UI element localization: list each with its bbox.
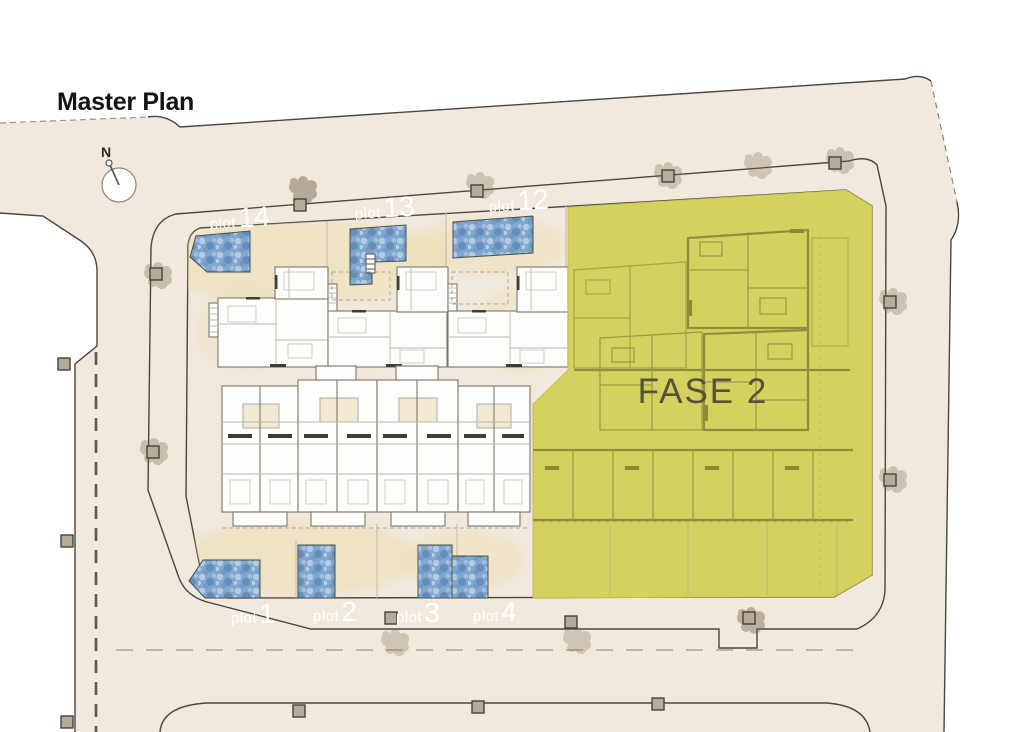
post-icon xyxy=(294,199,306,211)
post-icon xyxy=(150,268,162,280)
post-icon xyxy=(743,612,755,624)
pool-plot-2 xyxy=(298,545,335,598)
pool-plot-12 xyxy=(453,216,533,258)
building-plot-3 xyxy=(377,366,458,526)
pool-plot-3 xyxy=(418,545,452,598)
pool-plot-4 xyxy=(452,556,488,598)
post-icon xyxy=(884,296,896,308)
fase2-label: FASE 2 xyxy=(638,372,769,411)
post-icon xyxy=(652,698,664,710)
post-icon xyxy=(58,358,70,370)
post-icon xyxy=(293,705,305,717)
compass-needle-head-icon xyxy=(106,160,112,166)
post-icon xyxy=(472,701,484,713)
post-icon xyxy=(61,535,73,547)
pool-plot-1 xyxy=(189,560,260,598)
building-plot-1 xyxy=(222,386,298,526)
post-icon xyxy=(884,474,896,486)
post-icon xyxy=(565,616,577,628)
post-icon xyxy=(61,716,73,728)
page-title: Master Plan xyxy=(57,88,194,116)
building-plot-4 xyxy=(458,386,530,526)
master-plan-figure: FASE 2 plot14 plot13 xyxy=(0,0,1024,732)
post-icon xyxy=(147,446,159,458)
pool-ladder-icon xyxy=(366,254,375,273)
post-icon xyxy=(662,170,674,182)
building-plot-2 xyxy=(298,366,377,526)
post-icon xyxy=(829,157,841,169)
post-icon xyxy=(471,185,483,197)
site-plan-drawing: FASE 2 plot14 plot13 xyxy=(0,0,1024,732)
north-label: N xyxy=(101,144,111,160)
